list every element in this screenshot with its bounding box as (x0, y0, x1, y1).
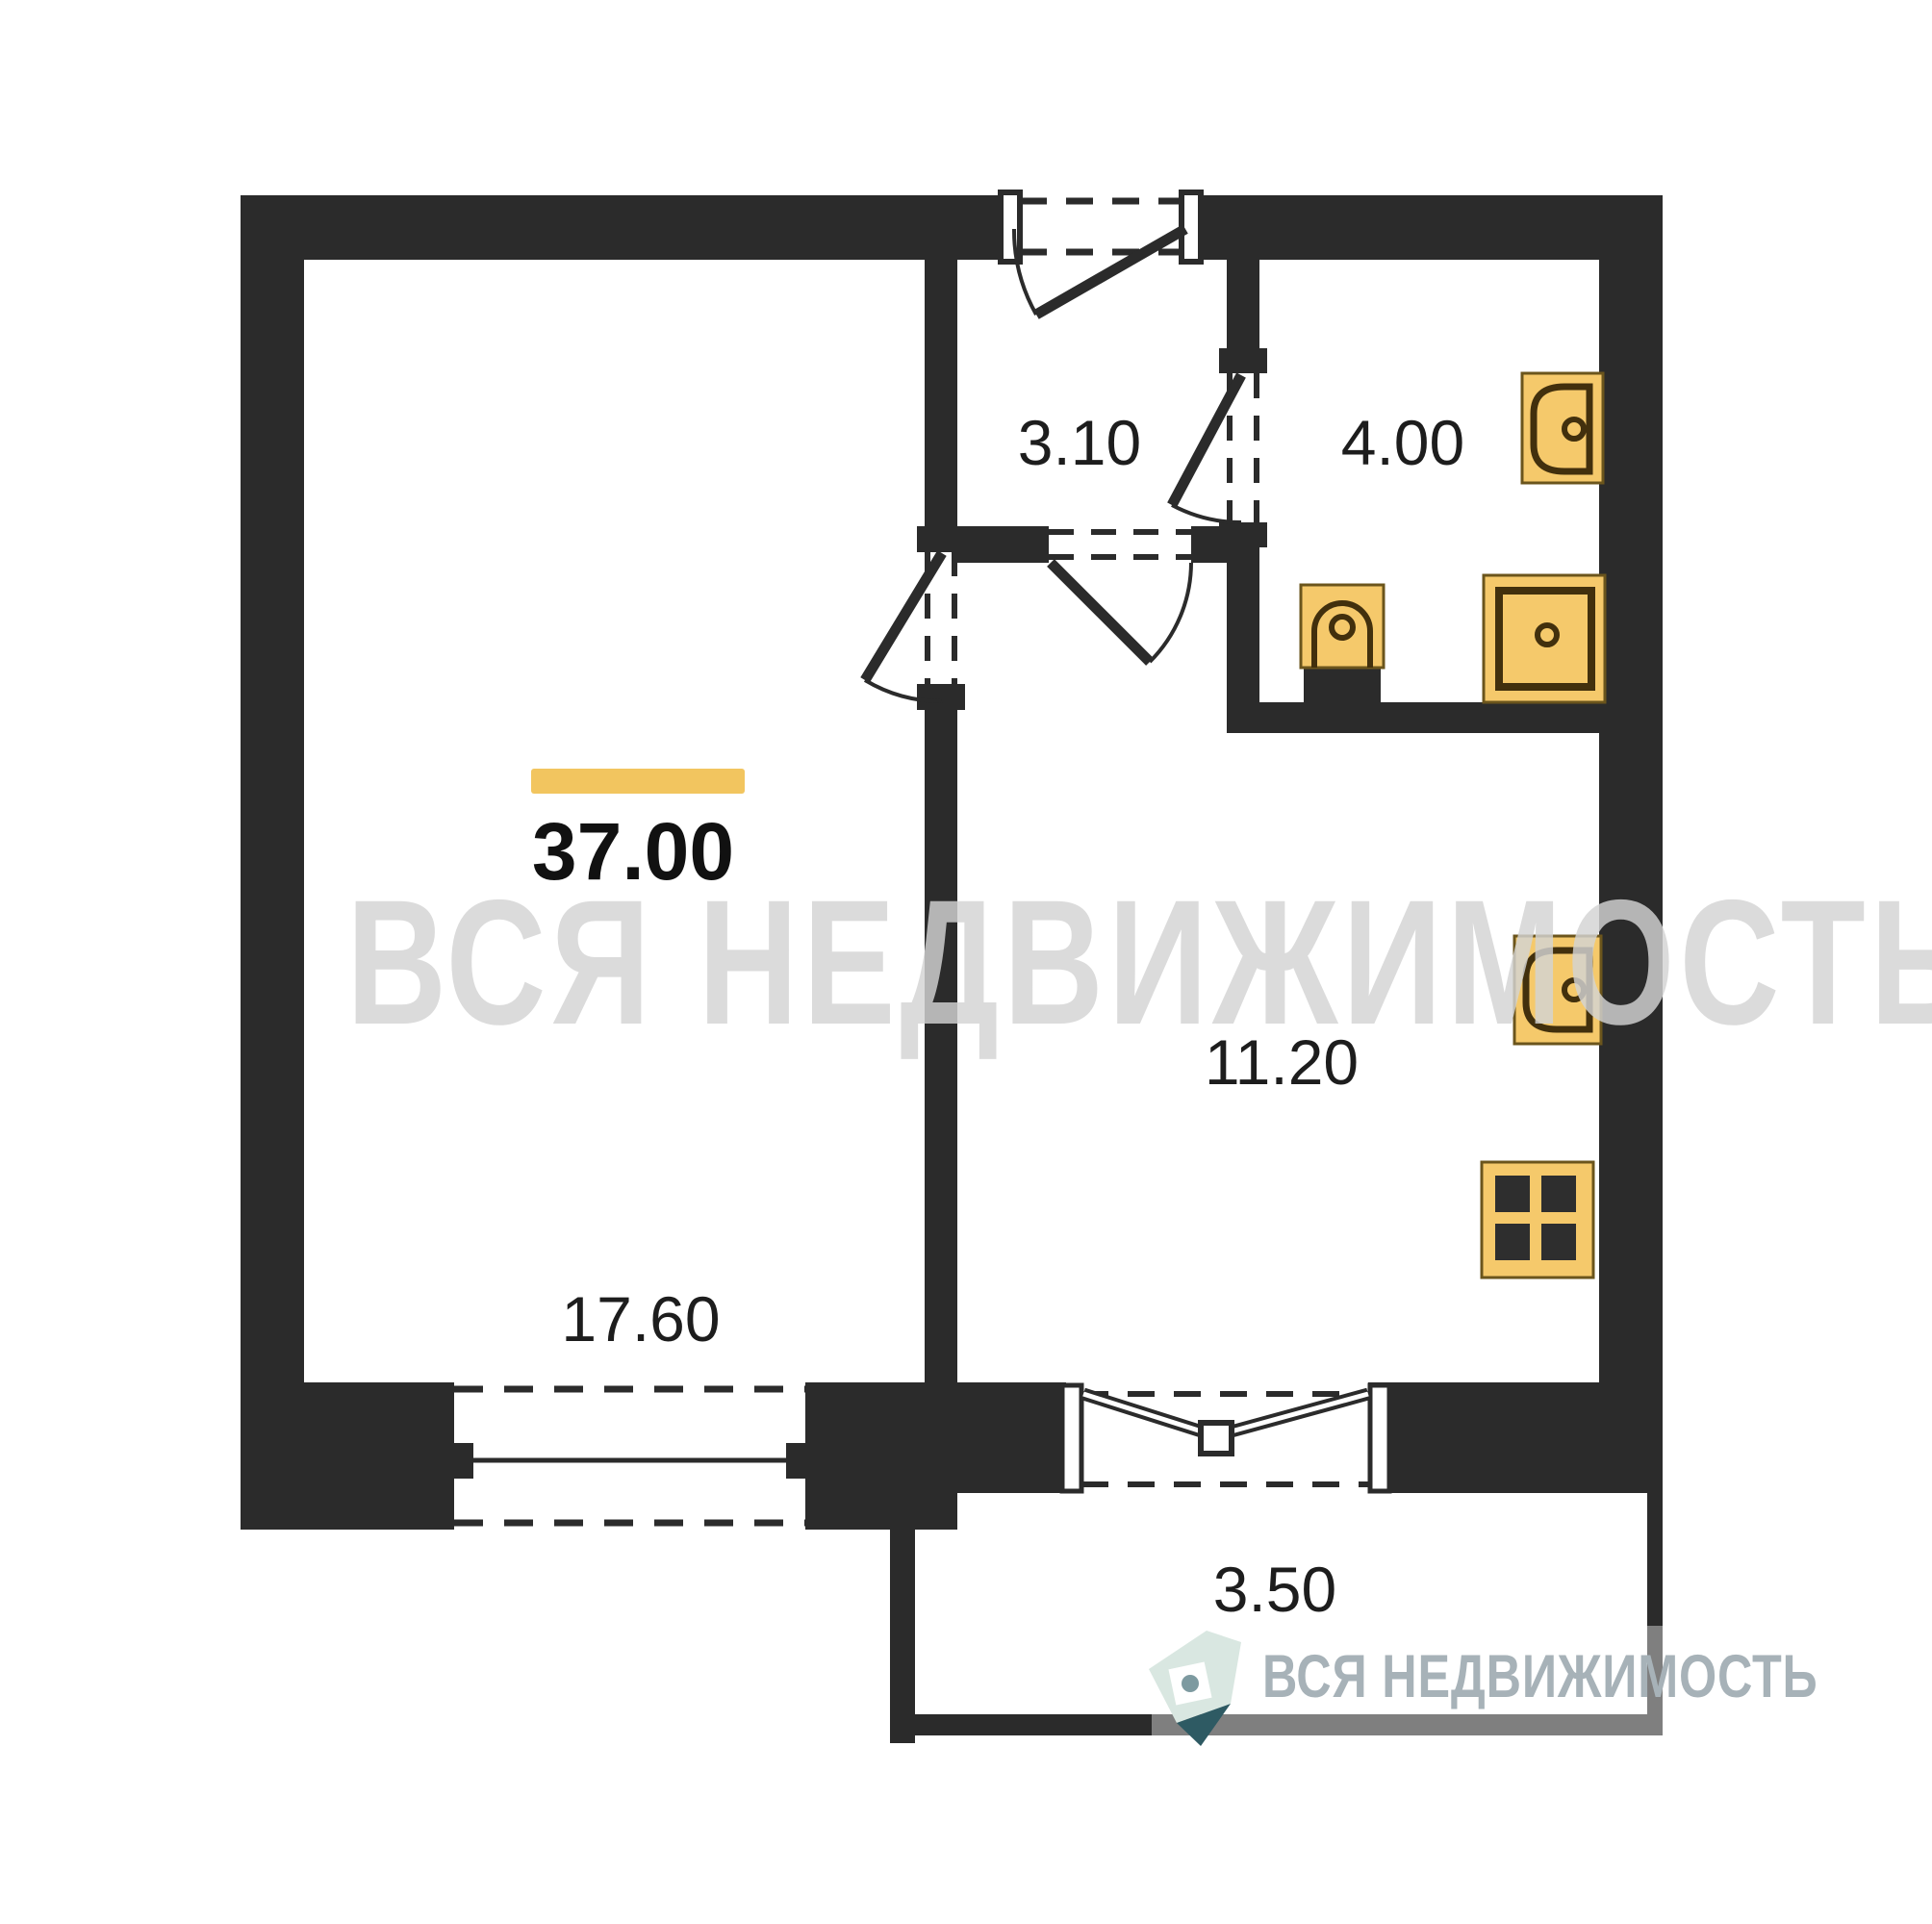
door-jamb (1370, 1385, 1389, 1491)
brand-logo-text: ВСЯ НЕДВИЖИМОСТЬ (1262, 1642, 1818, 1711)
partition-hall-bath-upper (1227, 260, 1259, 348)
balcony-area-label: 3.50 (1213, 1557, 1336, 1621)
door-cap (1219, 522, 1267, 547)
toilet-icon (1301, 585, 1384, 668)
burner (1495, 1176, 1530, 1212)
entrance-door-icon (1001, 192, 1201, 315)
balcony-border-bottom-dark (890, 1714, 1152, 1735)
wall-bottom-kitchen-left (925, 1382, 1066, 1493)
balcony-border-right-dark (1647, 1493, 1663, 1626)
door-leaf (1051, 563, 1150, 662)
living-area-label: 17.60 (561, 1287, 720, 1351)
floor-plan-page: 37.00 3.10 4.00 11.20 17.60 3.50 ВСЯ НЕД… (0, 0, 1932, 1924)
burner (1495, 1224, 1530, 1260)
wall-right (1599, 195, 1663, 1493)
washbasin-icon (1522, 373, 1603, 483)
total-area-label: 37.00 (532, 811, 734, 892)
logo-shape-dot (1182, 1675, 1199, 1692)
burner (1541, 1176, 1576, 1212)
brand-logo-icon (1145, 1629, 1253, 1750)
wall-bathroom-bottom (1227, 702, 1610, 733)
brand-logo: ВСЯ НЕДВИЖИМОСТЬ (1145, 1629, 1684, 1754)
partition-living-hall-upper (925, 260, 957, 526)
window-icon (454, 1389, 805, 1523)
balcony-wall-left (890, 1525, 915, 1743)
door-leaf-left-fill (1083, 1394, 1205, 1432)
wall-hall-bottom-left (957, 526, 1049, 563)
door-leaf-right-fill (1228, 1394, 1368, 1432)
wall-bottom-living-left (241, 1382, 454, 1530)
wall-top-left (241, 195, 1001, 260)
window-stop (786, 1443, 805, 1479)
hallway-area-label: 3.10 (1018, 411, 1141, 474)
total-area-accent-bar (531, 769, 745, 794)
door-swing-arc (1150, 563, 1191, 662)
door-cap (917, 684, 965, 710)
burner (1541, 1224, 1576, 1260)
stove-icon (1482, 1162, 1593, 1278)
kitchen-door-icon (1049, 532, 1191, 662)
wall-top-right (1201, 195, 1663, 260)
bathroom-area-label: 4.00 (1341, 411, 1464, 474)
kitchen-area-label: 11.20 (1205, 1030, 1359, 1094)
door-jamb (1062, 1385, 1081, 1491)
shower-tray-icon (1484, 575, 1605, 702)
door-leaf (1036, 229, 1185, 315)
toilet-chase (1304, 667, 1381, 705)
window-stop (454, 1443, 473, 1479)
wall-bottom-kitchen-right (1368, 1382, 1663, 1493)
door-cap (1219, 348, 1267, 373)
door-jamb (1182, 192, 1201, 262)
bathroom-door-icon (1172, 373, 1257, 522)
door-handle (1201, 1423, 1232, 1454)
wall-left (241, 195, 304, 1530)
living-room-door-icon (865, 551, 954, 701)
balcony-door-icon (1062, 1385, 1389, 1491)
